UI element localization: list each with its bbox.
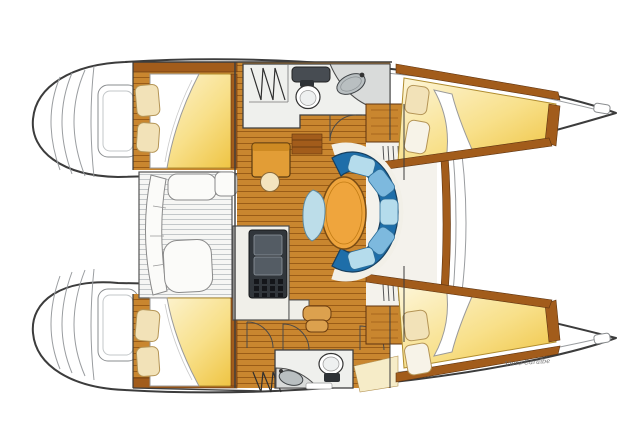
bow-cleat-starboard: [593, 333, 610, 344]
pillow: [136, 122, 160, 152]
cockpit-cushion-aft: [168, 174, 216, 200]
sink-basin: [254, 235, 282, 255]
bow-cleat-port: [593, 103, 610, 114]
hull-steps: [303, 306, 331, 321]
hull-steps-shelf: [292, 134, 322, 154]
dinette-table: [322, 177, 366, 249]
pillow: [402, 309, 430, 341]
pillow: [404, 85, 430, 116]
faucet: [279, 369, 283, 373]
faucet: [360, 73, 365, 78]
cockpit-cushion-fwd: [163, 239, 214, 293]
toilet-tank: [292, 67, 330, 82]
shower-step: [306, 383, 332, 389]
nav-stool: [261, 173, 280, 192]
pillow: [404, 342, 433, 376]
cockpit: [139, 172, 237, 298]
pillow: [136, 346, 160, 376]
toilet-seat-hinge: [324, 373, 340, 382]
cockpit-cushion-side: [215, 172, 237, 196]
catamaran-floorplan: Vivre Caraïbe: [0, 0, 640, 446]
pillow: [135, 84, 161, 117]
pillow: [135, 309, 161, 342]
floorplan-canvas: Vivre Caraïbe: [0, 0, 640, 446]
sink-basin: [254, 257, 282, 275]
